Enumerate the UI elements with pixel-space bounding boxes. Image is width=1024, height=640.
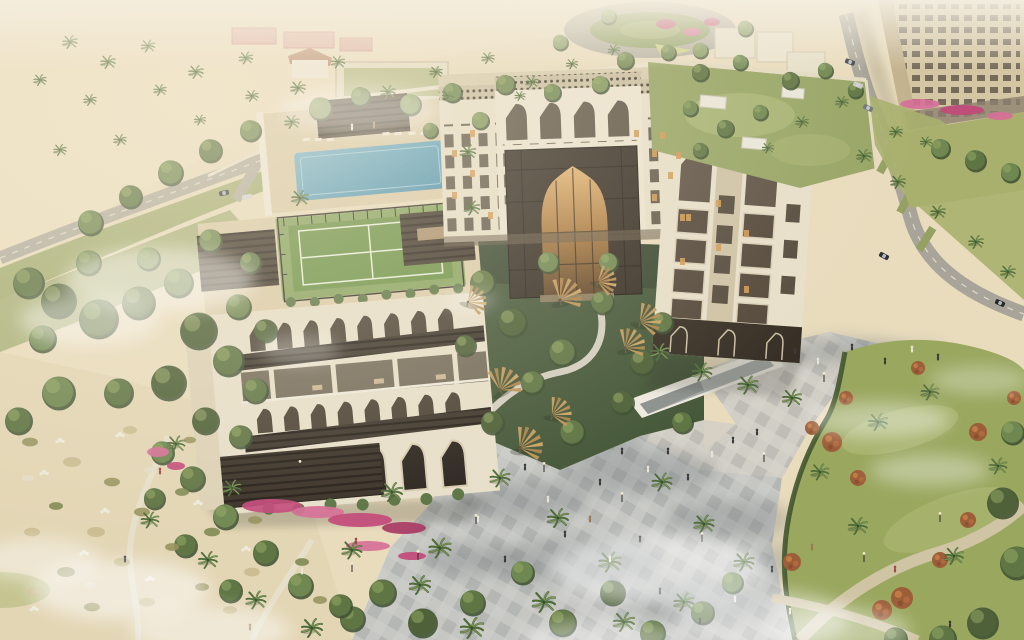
building-shadow bbox=[645, 352, 806, 396]
tower-arch-windows bbox=[505, 100, 629, 140]
left-building-facade bbox=[208, 291, 500, 514]
beach-court bbox=[232, 28, 276, 44]
arch-row-lower bbox=[256, 392, 461, 434]
mist-layer bbox=[0, 86, 1024, 640]
awning-row-1 bbox=[236, 325, 485, 371]
flower-layer bbox=[147, 18, 1013, 560]
swimming-pool bbox=[294, 140, 448, 201]
west-terraces bbox=[185, 329, 225, 510]
parapet-ornament bbox=[439, 78, 701, 101]
base-pergola bbox=[220, 443, 384, 509]
garden-path bbox=[252, 540, 312, 640]
central-facade bbox=[439, 92, 706, 243]
ground-floor-arches bbox=[280, 440, 467, 502]
entry-ramp bbox=[628, 323, 789, 418]
pool-pergola bbox=[315, 93, 410, 139]
perimeter-wall bbox=[208, 106, 282, 176]
beach-court bbox=[340, 38, 372, 51]
perimeter-wall bbox=[282, 64, 652, 106]
grand-arch bbox=[505, 146, 642, 304]
rooftop-garden bbox=[648, 60, 876, 188]
scrub-layer bbox=[22, 426, 327, 614]
people-layer bbox=[124, 122, 952, 631]
parapet-ornament bbox=[667, 123, 816, 149]
main-road bbox=[0, 90, 862, 258]
courtyard-garden bbox=[442, 238, 704, 470]
beach-sand bbox=[0, 0, 648, 268]
park-path bbox=[772, 598, 918, 640]
rust-bush-layer bbox=[783, 361, 1021, 620]
park-lawn bbox=[784, 340, 1024, 640]
left-building bbox=[166, 88, 501, 525]
ground-sand-base bbox=[0, 0, 1024, 640]
warm-haze-overlay bbox=[0, 0, 1024, 640]
lamp-layer bbox=[299, 372, 942, 572]
balcony-floor bbox=[239, 349, 491, 403]
recessed-bay bbox=[706, 145, 744, 322]
central-building bbox=[438, 66, 708, 306]
pool-deck bbox=[256, 89, 469, 216]
dune-garden bbox=[0, 352, 352, 640]
plaza-bench bbox=[741, 323, 790, 352]
roof-pergola-left bbox=[197, 229, 280, 292]
park-path bbox=[800, 505, 1024, 640]
road-network bbox=[0, 2, 1024, 314]
horizon-haze bbox=[0, 0, 1024, 70]
garden-path bbox=[130, 436, 168, 640]
park bbox=[0, 96, 1024, 640]
beach-area bbox=[0, 0, 660, 268]
courtyard-path bbox=[470, 296, 602, 432]
roundabout bbox=[564, 2, 736, 58]
right-wing-base bbox=[652, 317, 802, 363]
right-road bbox=[846, 14, 1024, 314]
plaza bbox=[352, 332, 880, 640]
tree-layer bbox=[5, 9, 1024, 640]
villas-district bbox=[288, 28, 825, 124]
building-shadow bbox=[205, 498, 488, 528]
roof-pergola-right bbox=[400, 208, 476, 266]
roof-parapet bbox=[648, 60, 866, 80]
arch-bay-left bbox=[670, 144, 713, 320]
palm-layer bbox=[33, 36, 1015, 638]
court-fence bbox=[277, 202, 464, 301]
park-hedge bbox=[784, 352, 845, 640]
beach-court bbox=[284, 32, 334, 48]
topright-building bbox=[852, 0, 1024, 208]
lit-windows-layer bbox=[452, 130, 749, 293]
padel-court bbox=[275, 202, 466, 302]
office-front-lawn bbox=[884, 112, 1024, 208]
right-wing bbox=[652, 111, 819, 363]
roof-terrace bbox=[198, 200, 483, 316]
central-tower bbox=[495, 86, 646, 241]
plaza-shadow-layer bbox=[424, 338, 950, 624]
arch-row-upper bbox=[249, 308, 454, 352]
awning-row-2 bbox=[244, 407, 493, 453]
arch-opening bbox=[540, 165, 610, 297]
roof-pergola bbox=[778, 119, 819, 136]
resort-aerial-rendering bbox=[0, 0, 1024, 640]
arch-bay-right bbox=[736, 149, 779, 325]
car-layer bbox=[219, 58, 1006, 307]
fan-canopies bbox=[458, 263, 664, 460]
greenbelt-lawn bbox=[0, 210, 260, 352]
rendering-canvas bbox=[0, 0, 1024, 640]
white-flower-layer bbox=[29, 432, 250, 612]
